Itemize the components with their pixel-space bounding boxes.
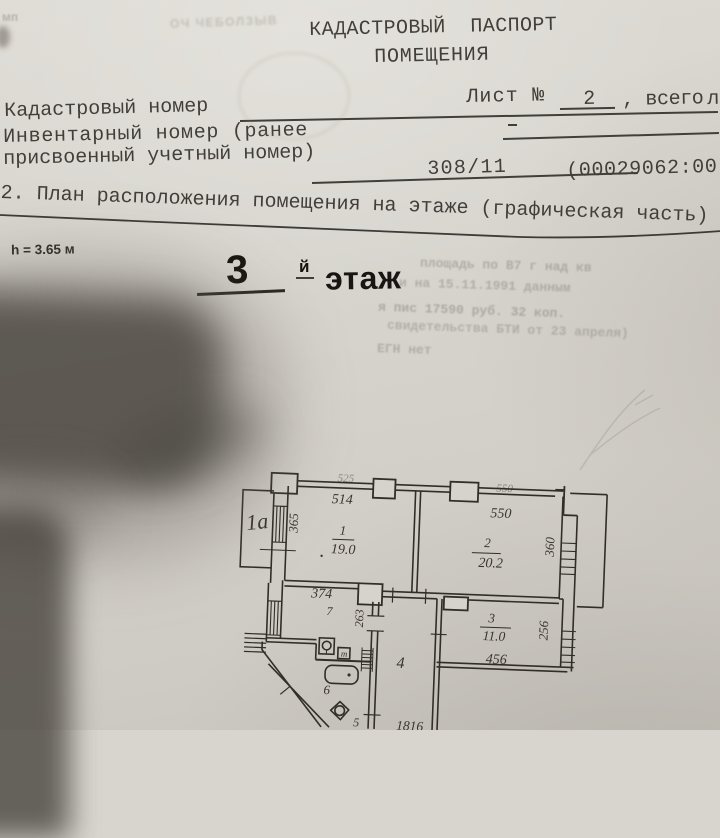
svg-text:256: 256: [536, 620, 552, 641]
svg-text:1а: 1а: [245, 508, 269, 535]
svg-text:20.2: 20.2: [478, 556, 503, 572]
svg-text:5: 5: [353, 715, 360, 729]
svg-text:263: 263: [352, 609, 367, 628]
svg-text:550: 550: [490, 506, 512, 522]
svg-text:374: 374: [310, 586, 333, 602]
svg-text:360: 360: [542, 536, 558, 558]
svg-text:11.0: 11.0: [482, 628, 505, 644]
svg-text:3: 3: [487, 610, 496, 625]
svg-text:1: 1: [339, 522, 346, 537]
svg-text:365: 365: [285, 512, 301, 534]
svg-text:550: 550: [496, 482, 513, 495]
svg-text:т: т: [341, 649, 348, 659]
svg-text:6: 6: [323, 682, 331, 697]
svg-text:514: 514: [331, 492, 353, 508]
svg-text:2: 2: [484, 535, 492, 550]
svg-text:525: 525: [337, 472, 354, 485]
svg-text:7: 7: [326, 604, 334, 618]
svg-text:19.0: 19.0: [331, 542, 356, 558]
svg-text:1816: 1816: [396, 718, 424, 730]
svg-text:4: 4: [396, 655, 405, 672]
